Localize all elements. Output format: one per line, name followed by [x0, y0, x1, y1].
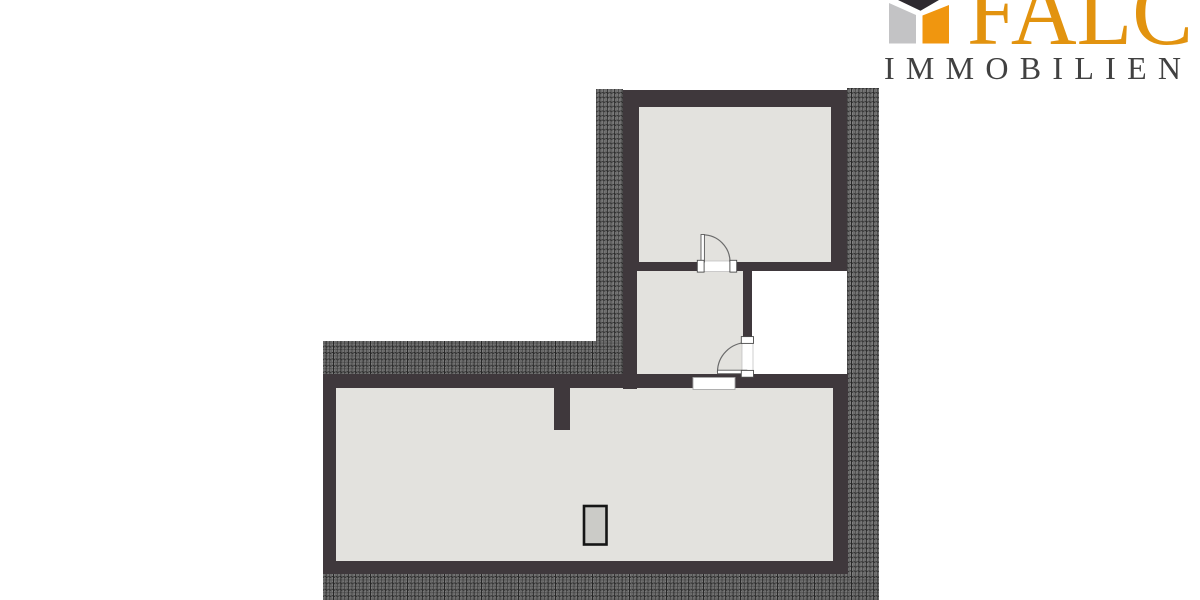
svg-text:IMMOBILIEN: IMMOBILIEN: [884, 50, 1181, 86]
